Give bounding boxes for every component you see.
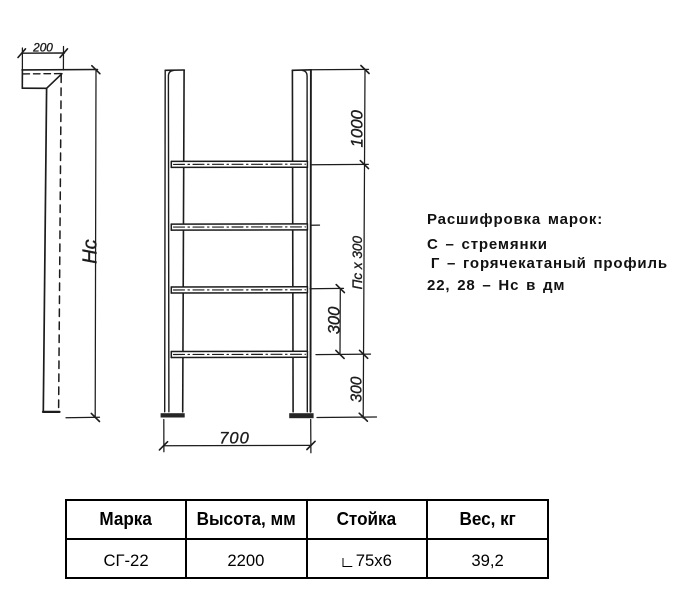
svg-text:Пс х 300: Пс х 300 bbox=[350, 236, 365, 290]
svg-text:300: 300 bbox=[326, 306, 344, 334]
svg-text:1000: 1000 bbox=[348, 109, 367, 147]
svg-text:Нс: Нс bbox=[80, 239, 102, 263]
svg-text:200: 200 bbox=[32, 40, 53, 54]
svg-text:300: 300 bbox=[349, 376, 366, 402]
svg-text:700: 700 bbox=[219, 430, 250, 448]
